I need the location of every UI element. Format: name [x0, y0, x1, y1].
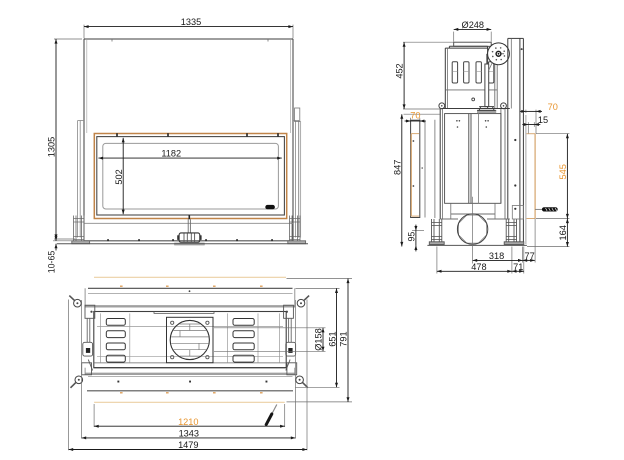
svg-text:651: 651	[327, 331, 337, 346]
svg-text:502: 502	[114, 169, 124, 184]
svg-text:Ø158: Ø158	[314, 328, 324, 350]
svg-text:164: 164	[558, 225, 568, 240]
svg-text:478: 478	[471, 262, 486, 272]
svg-text:1182: 1182	[161, 149, 181, 159]
svg-text:1210: 1210	[178, 417, 198, 427]
svg-text:1335: 1335	[181, 17, 201, 27]
svg-text:71: 71	[513, 262, 523, 272]
svg-text:77: 77	[524, 251, 534, 261]
svg-text:70: 70	[548, 102, 558, 112]
svg-text:10-65: 10-65	[47, 251, 57, 274]
svg-text:452: 452	[395, 63, 405, 78]
svg-text:791: 791	[339, 331, 349, 346]
svg-text:318: 318	[489, 251, 504, 261]
svg-text:847: 847	[392, 160, 402, 175]
svg-text:95: 95	[407, 232, 417, 242]
svg-text:70: 70	[410, 111, 420, 121]
svg-text:1305: 1305	[47, 137, 57, 157]
svg-text:545: 545	[558, 164, 568, 179]
svg-text:Ø248: Ø248	[462, 20, 484, 30]
svg-text:15: 15	[538, 115, 548, 125]
svg-text:1479: 1479	[178, 440, 198, 450]
svg-text:1343: 1343	[179, 429, 199, 439]
